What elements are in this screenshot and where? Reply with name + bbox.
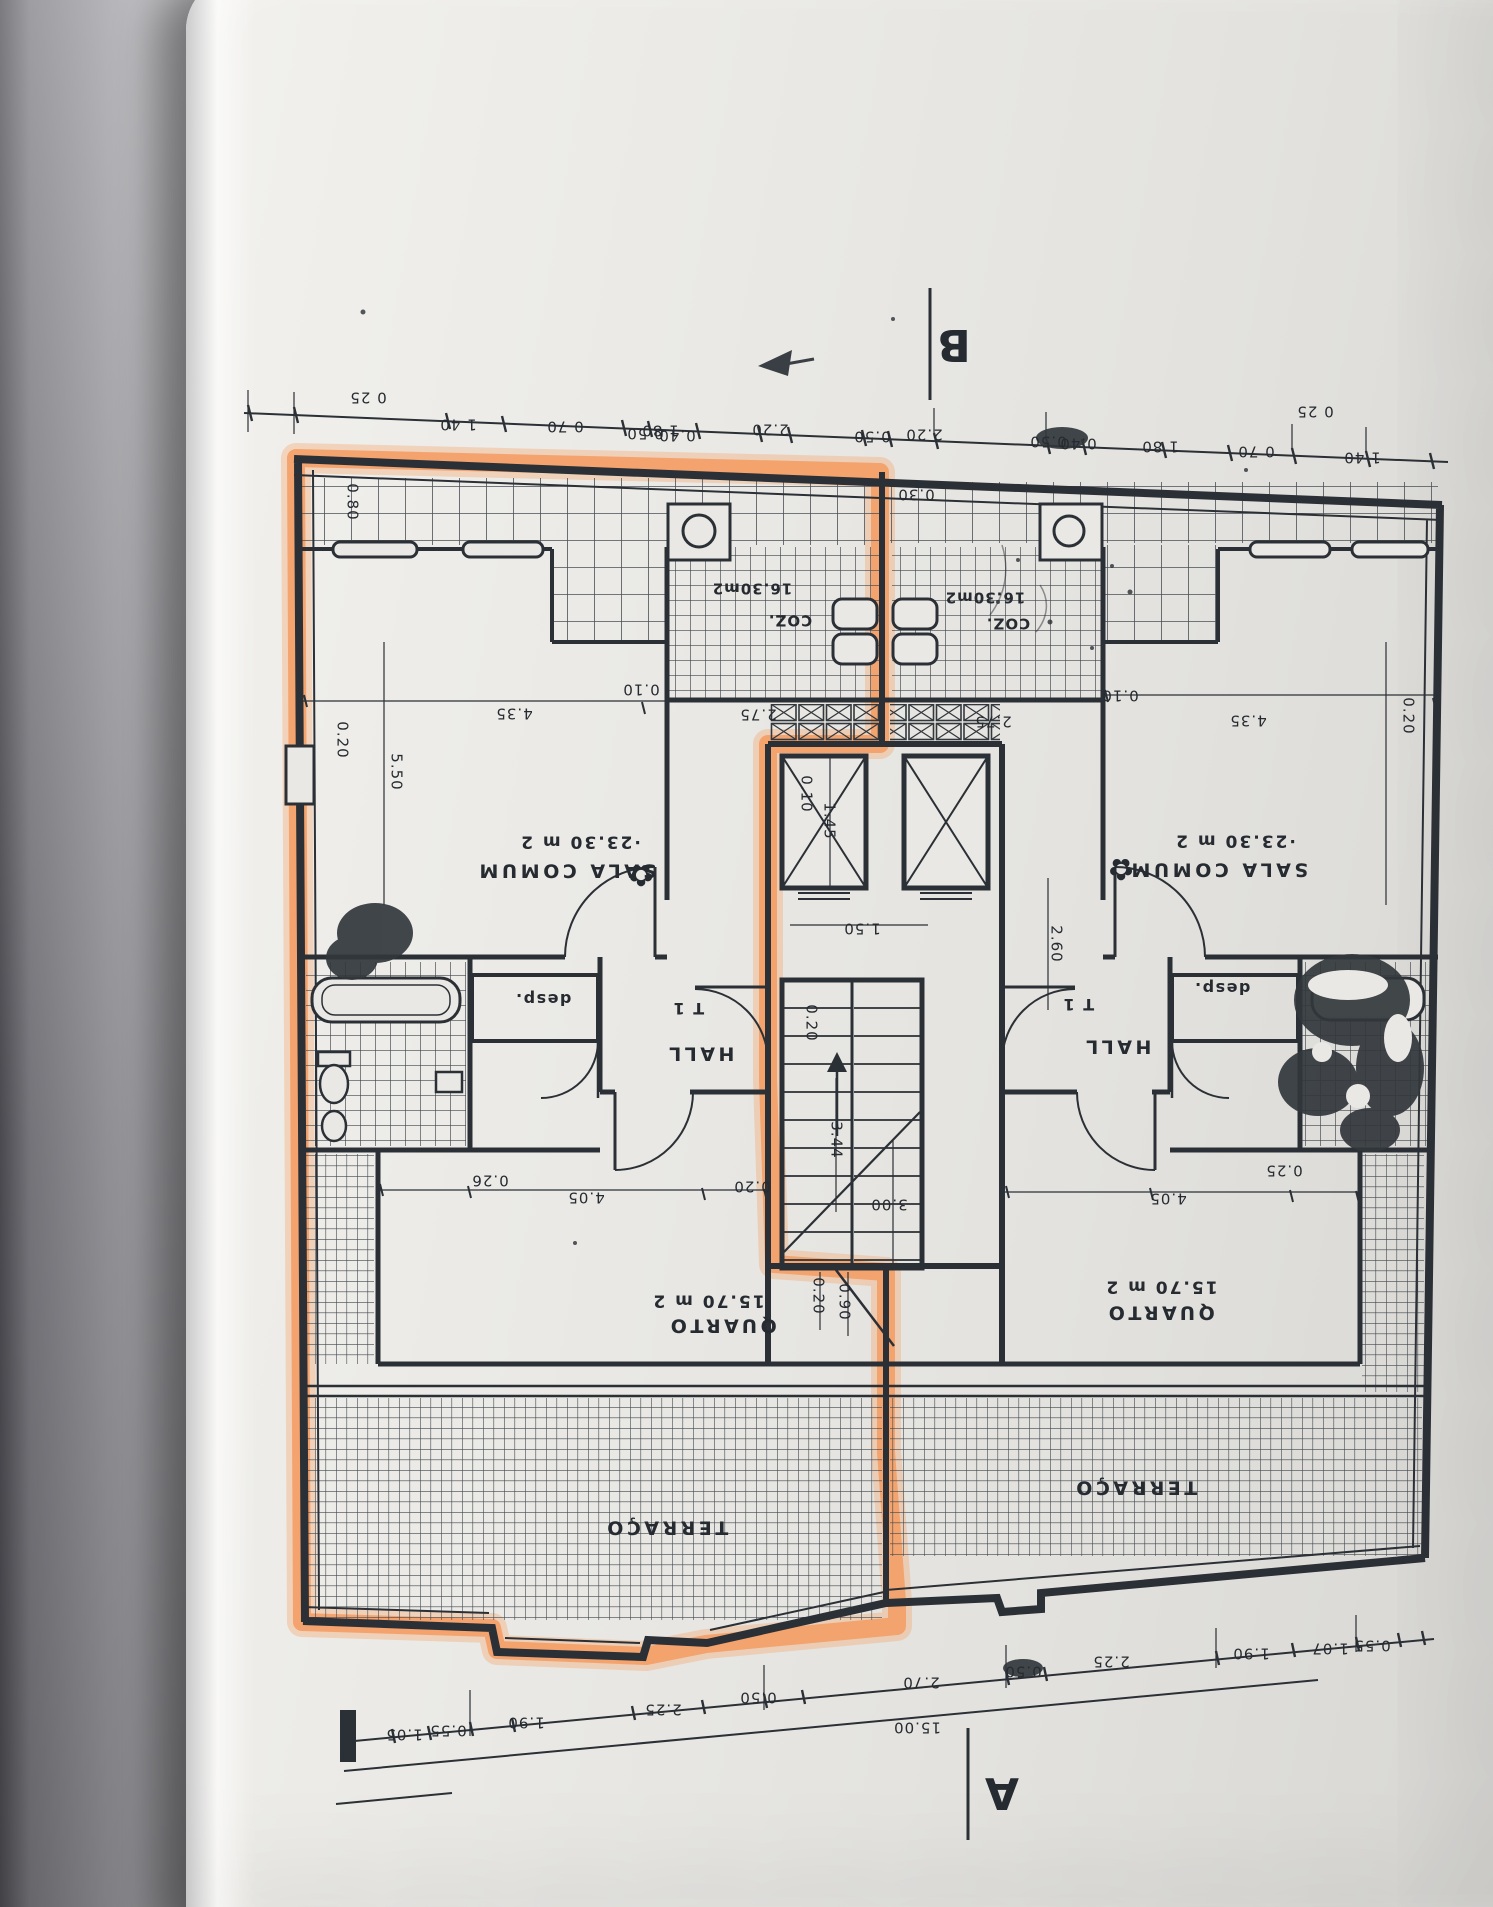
floor-plan: ·23.30 m 2SALA COMUM·23.30 m 2SALA COMUM…: [0, 0, 1493, 1907]
photo-of-floor-plan: ·23.30 m 2SALA COMUM·23.30 m 2SALA COMUM…: [0, 0, 1493, 1907]
floorplan-linework: [0, 0, 1493, 1907]
